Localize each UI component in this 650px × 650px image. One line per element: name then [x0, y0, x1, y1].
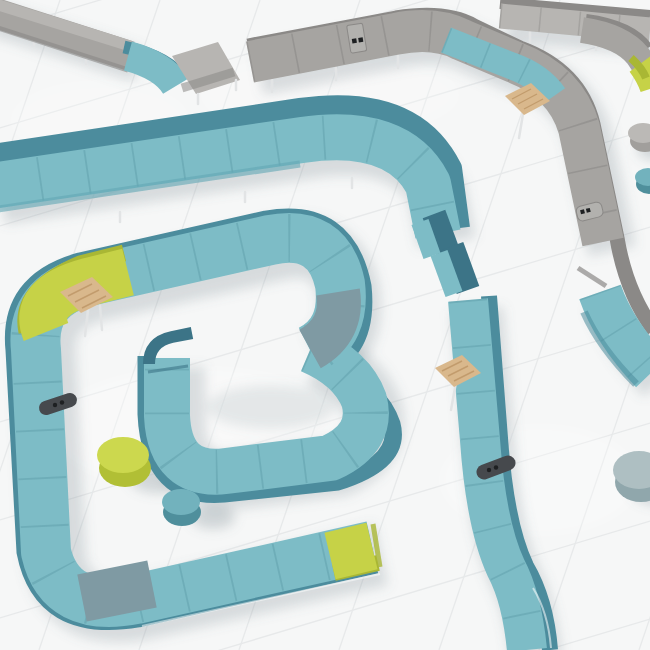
lime-end-cap [330, 546, 372, 556]
power-unit-3: Power capsule on spiral back [46, 400, 70, 408]
high-back-seat [420, 222, 432, 256]
pouf-yellow-center: Yellow-green cylindrical pouf inside spi… [97, 437, 151, 487]
scene-canvas: Aerial showroom render — modular curved … [0, 0, 650, 650]
power-unit-4: Power capsule on high-back run [484, 463, 508, 472]
pouf-teal-center: Small teal cylindrical pouf inside spira… [162, 489, 201, 526]
textured-seat-patch [82, 584, 152, 598]
showroom-render: Aerial showroom render — modular curved … [0, 0, 650, 650]
